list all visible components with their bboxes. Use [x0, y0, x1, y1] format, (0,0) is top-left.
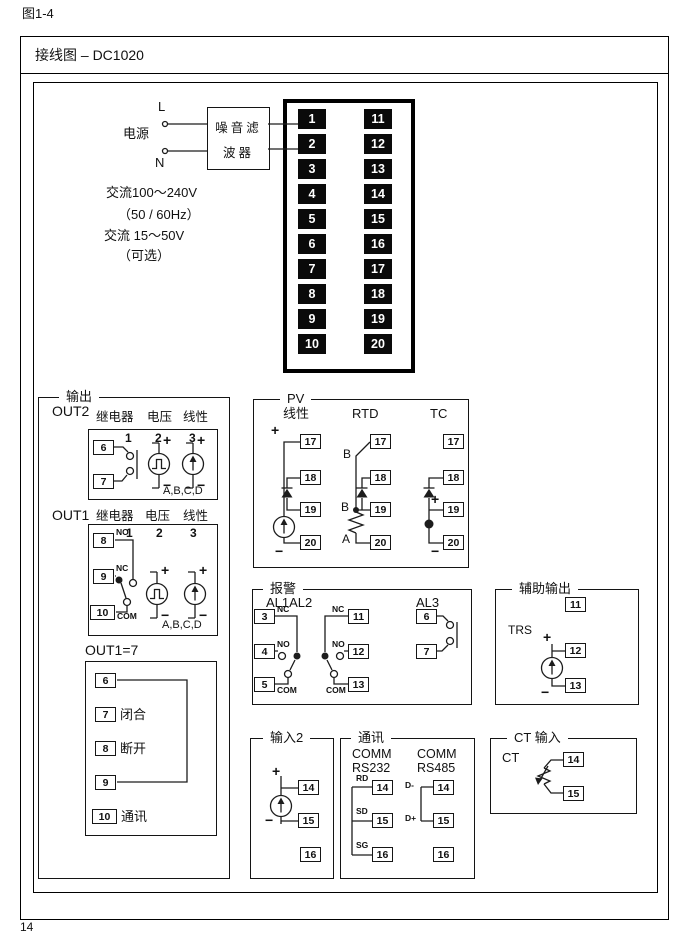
block-terminal-20: 20	[364, 334, 392, 354]
out1-7-open-label: 断开	[120, 742, 146, 756]
out1-linear-plus: +	[199, 563, 207, 578]
pv-rtd-b-mid: B	[341, 501, 349, 514]
out1-7-comm-label: 通讯	[121, 810, 147, 824]
terminal-6: 6	[416, 609, 437, 624]
pv-rtd-b-top: B	[343, 448, 351, 461]
terminal-6: 6	[93, 440, 114, 455]
rs485-dminus-label: D-	[405, 781, 414, 790]
out2-col2-num: 2	[155, 432, 162, 445]
block-terminal-17: 17	[364, 259, 392, 279]
noise-filter-line1: 噪音滤	[215, 117, 262, 136]
terminal-12: 12	[565, 643, 586, 658]
terminal-10: 10	[90, 605, 115, 620]
terminal-20: 20	[443, 535, 464, 550]
pv-tc-plus: +	[431, 492, 439, 507]
terminal-14: 14	[298, 780, 319, 795]
terminal-7: 7	[95, 707, 116, 722]
out1-voltage-plus: +	[161, 563, 169, 578]
terminal-15: 15	[298, 813, 319, 828]
pv-rtd-a: A	[342, 533, 350, 546]
out1-col-linear: 线性	[183, 510, 208, 524]
page-number: 14	[20, 921, 33, 934]
pv-linear-minus: −	[275, 544, 283, 559]
terminal-16: 16	[300, 847, 321, 862]
out2-linear-plus: +	[197, 433, 205, 448]
block-terminal-3: 3	[298, 159, 326, 179]
al2-com-label: COM	[326, 686, 346, 695]
panel-header: 接线图 – DC1020	[21, 37, 668, 74]
pv-linear-plus: +	[271, 423, 279, 438]
terminal-19: 19	[443, 502, 464, 517]
al1-nc-label: NC	[277, 605, 289, 614]
terminal-20: 20	[300, 535, 321, 550]
block-terminal-18: 18	[364, 284, 392, 304]
noise-filter-line2: 波器	[223, 142, 254, 161]
aux-section-title: 辅助输出	[512, 581, 578, 597]
block-terminal-1: 1	[298, 109, 326, 129]
block-terminal-9: 9	[298, 309, 326, 329]
terminal-14: 14	[372, 780, 393, 795]
out2-label: OUT2	[52, 404, 89, 419]
block-terminal-8: 8	[298, 284, 326, 304]
terminal-14: 14	[563, 752, 584, 767]
block-terminal-2: 2	[298, 134, 326, 154]
terminal-16: 16	[372, 847, 393, 862]
terminal-19: 19	[370, 502, 391, 517]
line-n-label: N	[155, 156, 164, 170]
rs485-dplus-label: D+	[405, 814, 416, 823]
block-terminal-6: 6	[298, 234, 326, 254]
panel-title: 接线图 – DC1020	[35, 45, 144, 65]
terminal-18: 18	[300, 470, 321, 485]
out1-col-voltage: 电压	[145, 510, 170, 524]
terminal-13: 13	[348, 677, 369, 692]
pv-linear-label: 线性	[283, 407, 309, 421]
terminal-3: 3	[254, 609, 275, 624]
terminal-18: 18	[370, 470, 391, 485]
terminal-17: 17	[370, 434, 391, 449]
manual-page: 图1-4 接线图 – DC1020 L 电源 N 噪音滤 波器 交流100～24…	[0, 0, 689, 937]
terminal-9: 9	[93, 569, 114, 584]
out2-abcd-label: A,B,C,D	[163, 485, 203, 497]
block-terminal-16: 16	[364, 234, 392, 254]
input2-minus: −	[265, 813, 273, 828]
power-spec-2: （50 / 60Hz）	[118, 208, 200, 222]
block-terminal-19: 19	[364, 309, 392, 329]
terminal-19: 19	[300, 502, 321, 517]
out1-abcd-label: A,B,C,D	[162, 619, 202, 631]
rs232-comm-label: COMM	[352, 748, 392, 762]
out1-7-label: OUT1=7	[85, 643, 138, 658]
out2-col-linear: 线性	[183, 411, 208, 425]
figure-label: 图1-4	[22, 7, 54, 21]
terminal-11: 11	[348, 609, 369, 624]
block-terminal-7: 7	[298, 259, 326, 279]
terminal-6: 6	[95, 673, 116, 688]
out2-voltage-plus: +	[163, 433, 171, 448]
pv-tc-label: TC	[430, 407, 447, 421]
terminal-10: 10	[92, 809, 117, 824]
out1-7-closed-label: 闭合	[120, 708, 146, 722]
power-spec-3: 交流 15～50V	[104, 229, 184, 243]
block-terminal-11: 11	[364, 109, 392, 129]
terminal-7: 7	[416, 644, 437, 659]
al2-no-label: NO	[332, 640, 345, 649]
out1-label: OUT1	[52, 508, 89, 523]
terminal-17: 17	[443, 434, 464, 449]
rs232-sd-label: SD	[356, 807, 368, 816]
out2-col-relay: 继电器	[96, 411, 134, 425]
aux-trs-label: TRS	[508, 624, 532, 637]
terminal-18: 18	[443, 470, 464, 485]
block-terminal-4: 4	[298, 184, 326, 204]
ct-label: CT	[502, 751, 519, 765]
out1-no-label: NO	[116, 528, 129, 537]
terminal-15: 15	[433, 813, 454, 828]
terminal-13: 13	[565, 678, 586, 693]
power-spec-4: （可选）	[118, 249, 170, 263]
input2-section-box: 输入2	[250, 738, 334, 879]
block-terminal-13: 13	[364, 159, 392, 179]
pv-rtd-label: RTD	[352, 407, 378, 421]
out1-nc-label: NC	[116, 564, 128, 573]
power-spec-1: 交流100～240V	[106, 186, 197, 200]
terminal-5: 5	[254, 677, 275, 692]
al1-no-label: NO	[277, 640, 290, 649]
block-terminal-10: 10	[298, 334, 326, 354]
line-l-label: L	[158, 100, 165, 114]
rs485-label: RS485	[417, 762, 455, 776]
noise-filter-box: 噪音滤 波器	[207, 107, 270, 170]
comm-section-title: 通讯	[351, 730, 391, 746]
terminal-17: 17	[300, 434, 321, 449]
terminal-15: 15	[563, 786, 584, 801]
out1-com-label: COM	[117, 612, 137, 621]
input2-plus: +	[272, 764, 280, 779]
terminal-14: 14	[433, 780, 454, 795]
block-terminal-12: 12	[364, 134, 392, 154]
out1-col2-num: 2	[156, 527, 163, 540]
out2-col1-num: 1	[125, 432, 132, 445]
rs485-comm-label: COMM	[417, 748, 457, 762]
input2-section-title: 输入2	[263, 730, 310, 746]
aux-minus: −	[541, 685, 549, 700]
terminal-8: 8	[93, 533, 114, 548]
out2-col-voltage: 电压	[147, 411, 172, 425]
block-terminal-15: 15	[364, 209, 392, 229]
al2-nc-label: NC	[332, 605, 344, 614]
terminal-12: 12	[348, 644, 369, 659]
terminal-8: 8	[95, 741, 116, 756]
terminal-4: 4	[254, 644, 275, 659]
rs232-rd-label: RD	[356, 774, 368, 783]
terminal-15: 15	[372, 813, 393, 828]
terminal-9: 9	[95, 775, 116, 790]
out2-col3-num: 3	[189, 432, 196, 445]
rs232-sg-label: SG	[356, 841, 368, 850]
al1-com-label: COM	[277, 686, 297, 695]
terminal-11: 11	[565, 597, 586, 612]
ct-section-title: CT 输入	[507, 730, 568, 746]
pv-section-title: PV	[280, 391, 311, 407]
terminal-16: 16	[433, 847, 454, 862]
block-terminal-5: 5	[298, 209, 326, 229]
terminal-block-right-column: 11 12 13 14 15 16 17 18 19 20	[364, 109, 392, 354]
terminal-20: 20	[370, 535, 391, 550]
block-terminal-14: 14	[364, 184, 392, 204]
pv-tc-minus: −	[431, 544, 439, 559]
terminal-block-left-column: 1 2 3 4 5 6 7 8 9 10	[298, 109, 326, 354]
power-label: 电源	[123, 127, 149, 141]
terminal-7: 7	[93, 474, 114, 489]
out1-col3-num: 3	[190, 527, 197, 540]
out1-col-relay: 继电器	[96, 510, 134, 524]
aux-plus: +	[543, 630, 551, 645]
